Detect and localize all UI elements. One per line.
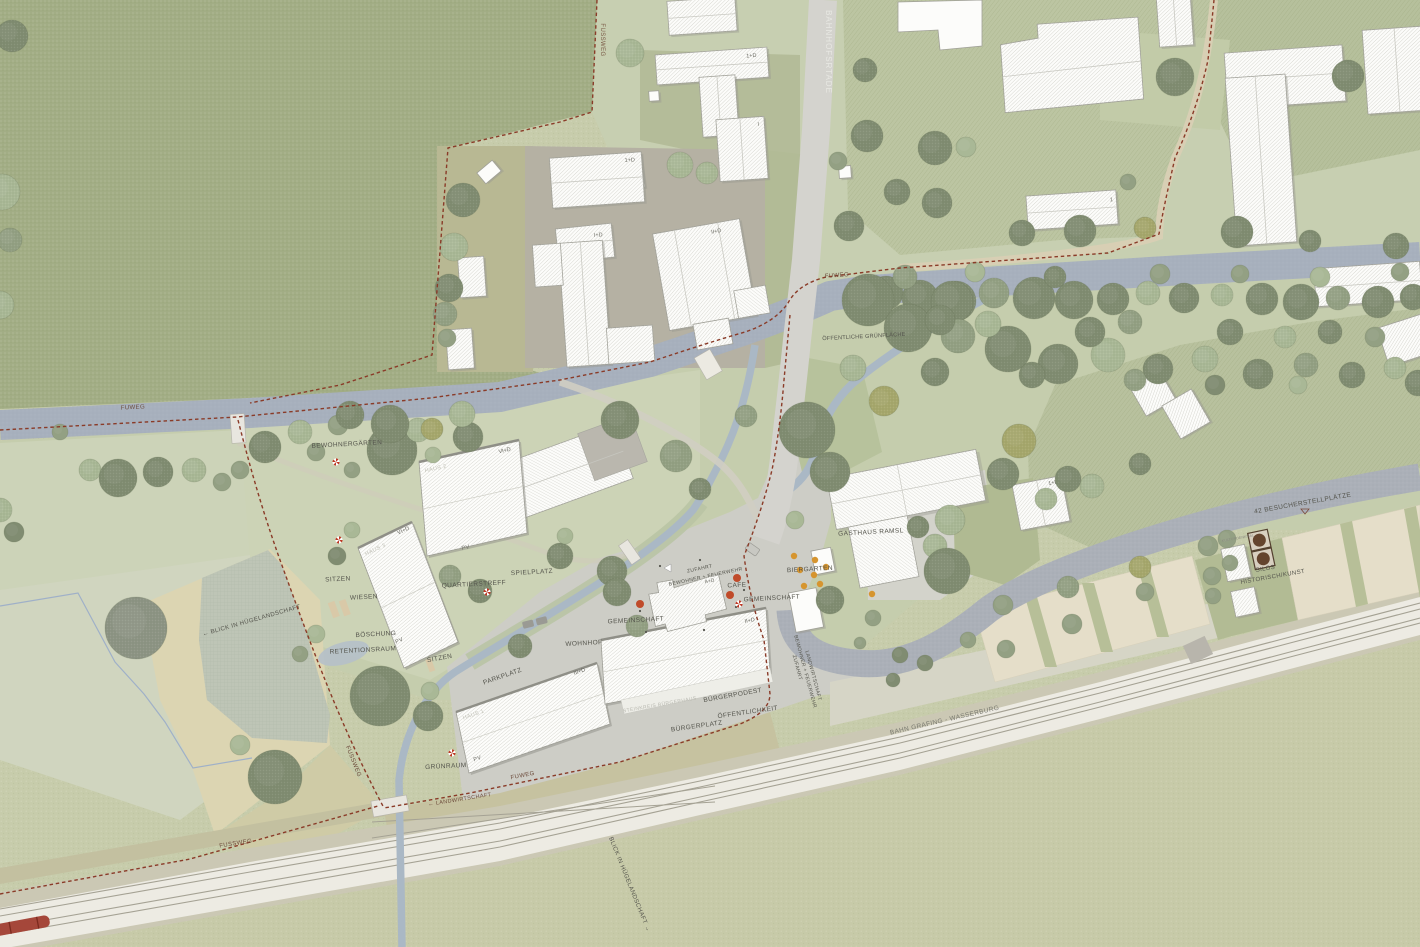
svg-text:CAFE: CAFE (727, 581, 747, 589)
svg-text:1+D: 1+D (624, 157, 635, 164)
svg-text:BAHNHOFSRTADE: BAHNHOFSRTADE (824, 10, 833, 94)
svg-text:1+D: 1+D (746, 53, 757, 60)
svg-text:FUWEG: FUWEG (121, 404, 146, 411)
svg-text:WIESEN: WIESEN (350, 593, 378, 601)
svg-text:I+D: I+D (594, 232, 603, 239)
svg-text:SITZEN: SITZEN (325, 575, 351, 583)
svg-text:1: 1 (1110, 197, 1113, 203)
svg-text:FUSSWEG: FUSSWEG (599, 23, 605, 56)
